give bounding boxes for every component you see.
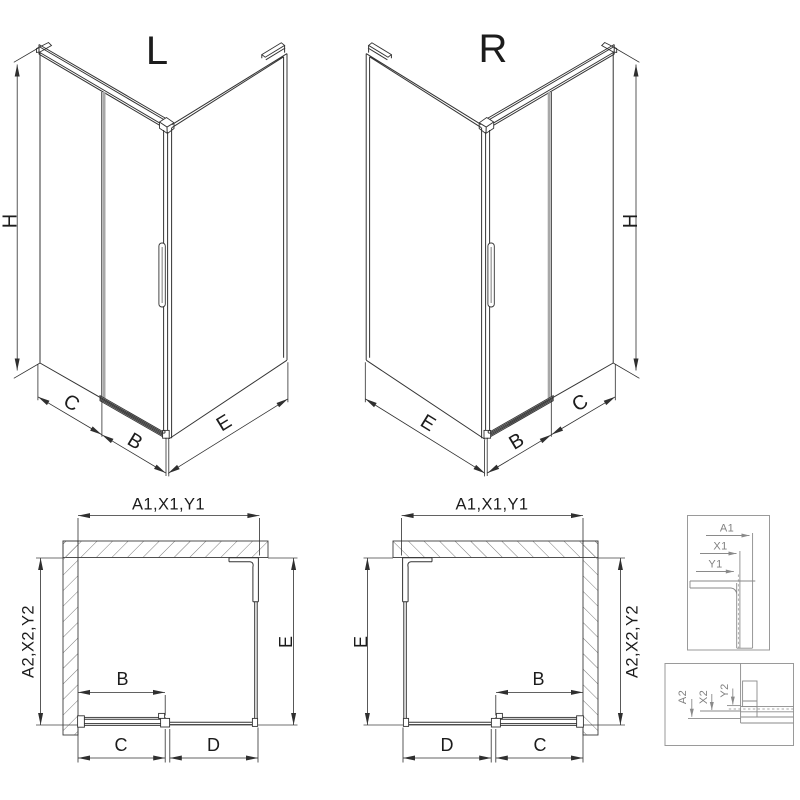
iso-enclosure-geometry-mirrored (365, 43, 639, 477)
iso-left-dim-e: E (213, 410, 236, 436)
detail-top-dim-y1: Y1 (708, 559, 722, 571)
detail-bottom-dim-y2: Y2 (719, 683, 731, 697)
plan-view-geometry-mirrored (364, 516, 626, 763)
plan-left-dim-e: E (276, 636, 296, 648)
detail-bottom-dim-a2: A2 (677, 690, 689, 704)
iso-right-title: R (479, 27, 508, 71)
plan-right-dim-depth: A2,X2,Y2 (624, 605, 642, 678)
detail-top-dim-a1: A1 (720, 523, 734, 535)
detail-callout-bottom: A2 X2 Y2 (665, 664, 794, 746)
plan-right-dim-d: D (441, 735, 454, 755)
iso-left-dim-c: C (59, 390, 83, 416)
technical-drawing-canvas: L H C B E R H E B C (0, 0, 800, 800)
plan-left-dim-b: B (116, 669, 128, 689)
detail-top-dim-x1: X1 (713, 541, 727, 553)
plan-right-dim-width: A1,X1,Y1 (456, 496, 529, 514)
plan-right-dim-e: E (351, 636, 371, 648)
detail-bottom-dim-x2: X2 (698, 690, 710, 704)
plan-right-dim-c: C (534, 735, 547, 755)
iso-right-dim-h: H (620, 214, 642, 228)
detail-callout-top: A1 X1 Y1 (688, 516, 770, 651)
iso-view-right: R H E B C (416, 27, 642, 455)
iso-left-dim-h: H (0, 214, 22, 228)
plan-left-dim-width: A1,X1,Y1 (132, 496, 205, 514)
plan-view-geometry (36, 516, 298, 763)
plan-left-dim-depth: A2,X2,Y2 (20, 605, 38, 678)
iso-enclosure-geometry (14, 43, 288, 477)
iso-left-title: L (146, 29, 168, 73)
plan-left-dim-d: D (207, 735, 220, 755)
plan-left-dim-c: C (115, 735, 128, 755)
drawing-page: L H C B E R H E B C (0, 0, 800, 800)
iso-left-dim-b: B (123, 429, 146, 455)
iso-right-dim-e: E (416, 410, 439, 436)
plan-right-dim-b: B (532, 669, 544, 689)
